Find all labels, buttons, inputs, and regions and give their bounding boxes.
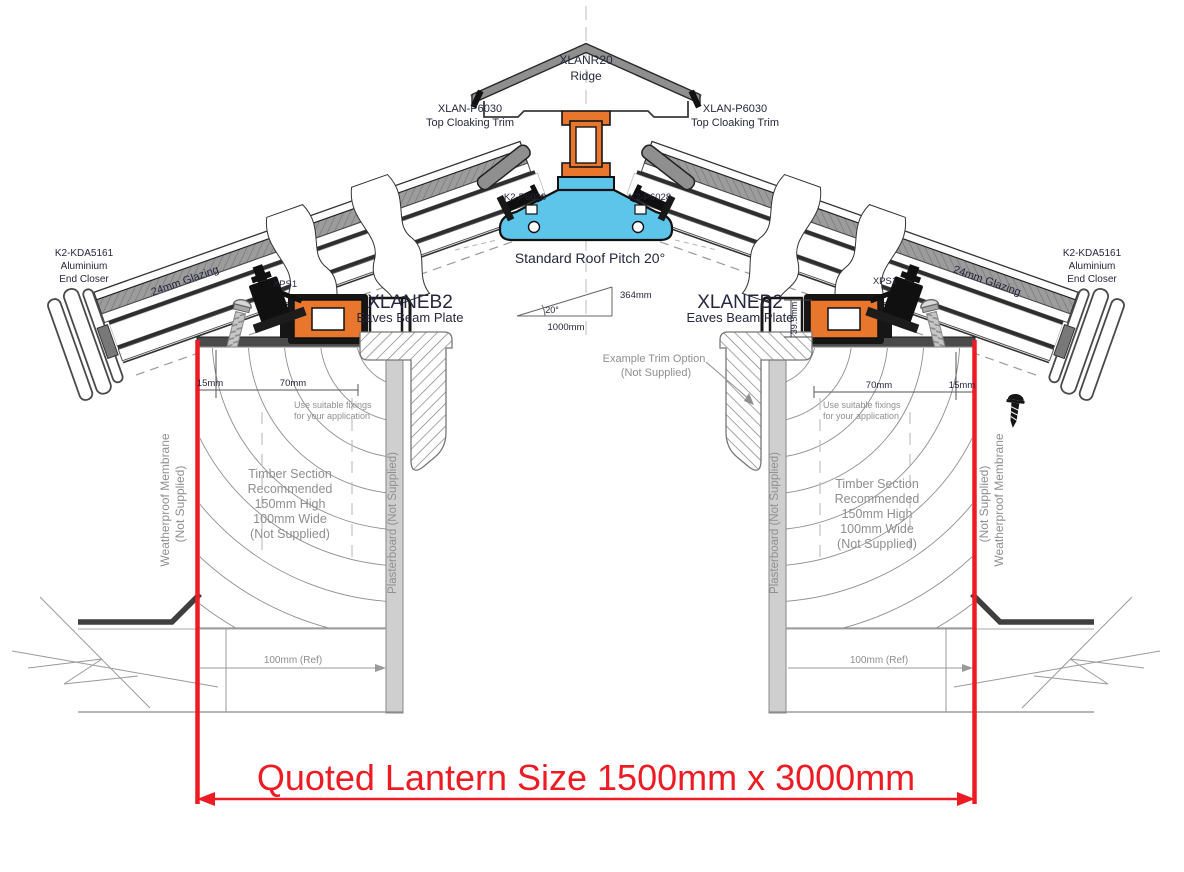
end-closer-right-3: End Closer	[1067, 274, 1117, 285]
end-closer-left-2: Aluminium	[61, 261, 108, 272]
timber-left-1: Timber Section	[248, 467, 332, 481]
timber-left-3: 150mm High	[255, 497, 326, 511]
timber-right-1: Timber Section	[835, 477, 919, 491]
dim-70-left-label: 70mm	[280, 378, 306, 389]
fixings-right-1: Use suitable fixings	[823, 400, 901, 410]
cloaking-left-code: XLAN-P6030	[438, 103, 502, 115]
roof-lantern-section-drawing: XLANR20 Ridge XLAN-P6030 Top Cloaking Tr…	[0, 0, 1184, 872]
dim-15-right-label: 15mm	[949, 380, 975, 391]
ridge-thermal-profile	[562, 111, 610, 177]
xps-left-label: XPS1	[273, 279, 297, 290]
ridge-beam-right-label: K2-P6028	[629, 192, 671, 203]
end-closer-right-2: Aluminium	[1069, 261, 1116, 272]
ridge-beam-left-label: K2-P6028	[504, 192, 546, 203]
dim-70-right-label: 70mm	[866, 380, 892, 391]
fixings-right-2: for your application	[823, 411, 899, 421]
plasterboard-left-label: Plasterboard (Not Supplied)	[387, 452, 399, 594]
break-mark	[12, 597, 218, 708]
weatherproof-membrane	[78, 594, 200, 622]
end-closer-left-3: End Closer	[59, 274, 109, 285]
cloaking-right-name: Top Cloaking Trim	[691, 117, 779, 129]
pitch-run-label: 1000mm	[548, 322, 585, 333]
screw-icon	[1004, 393, 1025, 429]
eaves-left-name: Eaves Beam Plate	[357, 310, 464, 325]
quoted-size-label: Quoted Lantern Size 1500mm x 3000mm	[257, 757, 915, 798]
ridge-code-label: XLANR20	[559, 53, 613, 67]
plasterboard-right-label: Plasterboard (Not Supplied)	[769, 452, 781, 594]
ref-100-right: 100mm (Ref)	[850, 655, 908, 666]
timber-right-5: (Not Supplied)	[837, 537, 917, 551]
end-closer-left-1: K2-KDA5161	[55, 248, 114, 259]
cloaking-left-name: Top Cloaking Trim	[426, 117, 514, 129]
membrane-left-2: (Not Supplied)	[173, 466, 187, 543]
fixings-left-2: for your application	[294, 411, 370, 421]
technical-drawing-canvas: XLANR20 Ridge XLAN-P6030 Top Cloaking Tr…	[0, 0, 1184, 872]
pitch-triangle	[517, 287, 612, 316]
membrane-right-1: Weatherproof Membrane	[992, 433, 1006, 567]
membrane-right-2: (Not Supplied)	[977, 466, 991, 543]
cloaking-right-code: XLAN-P6030	[703, 103, 767, 115]
timber-left-2: Recommended	[248, 482, 333, 496]
ridge-name-label: Ridge	[570, 69, 602, 83]
pitch-rise-label: 364mm	[620, 290, 652, 301]
timber-right-2: Recommended	[835, 492, 920, 506]
pitch-note-label: Standard Roof Pitch 20°	[515, 250, 665, 266]
trim-option-1: Example Trim Option	[603, 353, 706, 365]
dim-15-left-label: 15mm	[197, 378, 223, 389]
timber-right-4: 100mm Wide	[840, 522, 914, 536]
ref-100-left: 100mm (Ref)	[264, 655, 322, 666]
trim-option-2: (Not Supplied)	[621, 367, 691, 379]
fixings-left-1: Use suitable fixings	[294, 400, 372, 410]
pitch-angle-label: 20°	[545, 305, 559, 315]
end-closer-right-1: K2-KDA5161	[1063, 248, 1122, 259]
dim-39-5-label: 39.5mm	[789, 302, 799, 335]
eaves-right-name: Eaves Beam Plate	[687, 310, 794, 325]
membrane-left-1: Weatherproof Membrane	[158, 433, 172, 567]
timber-left-4: 100mm Wide	[253, 512, 327, 526]
xps-right-label: XPS1	[873, 276, 897, 287]
timber-right-3: 150mm High	[842, 507, 913, 521]
timber-left-5: (Not Supplied)	[250, 527, 330, 541]
